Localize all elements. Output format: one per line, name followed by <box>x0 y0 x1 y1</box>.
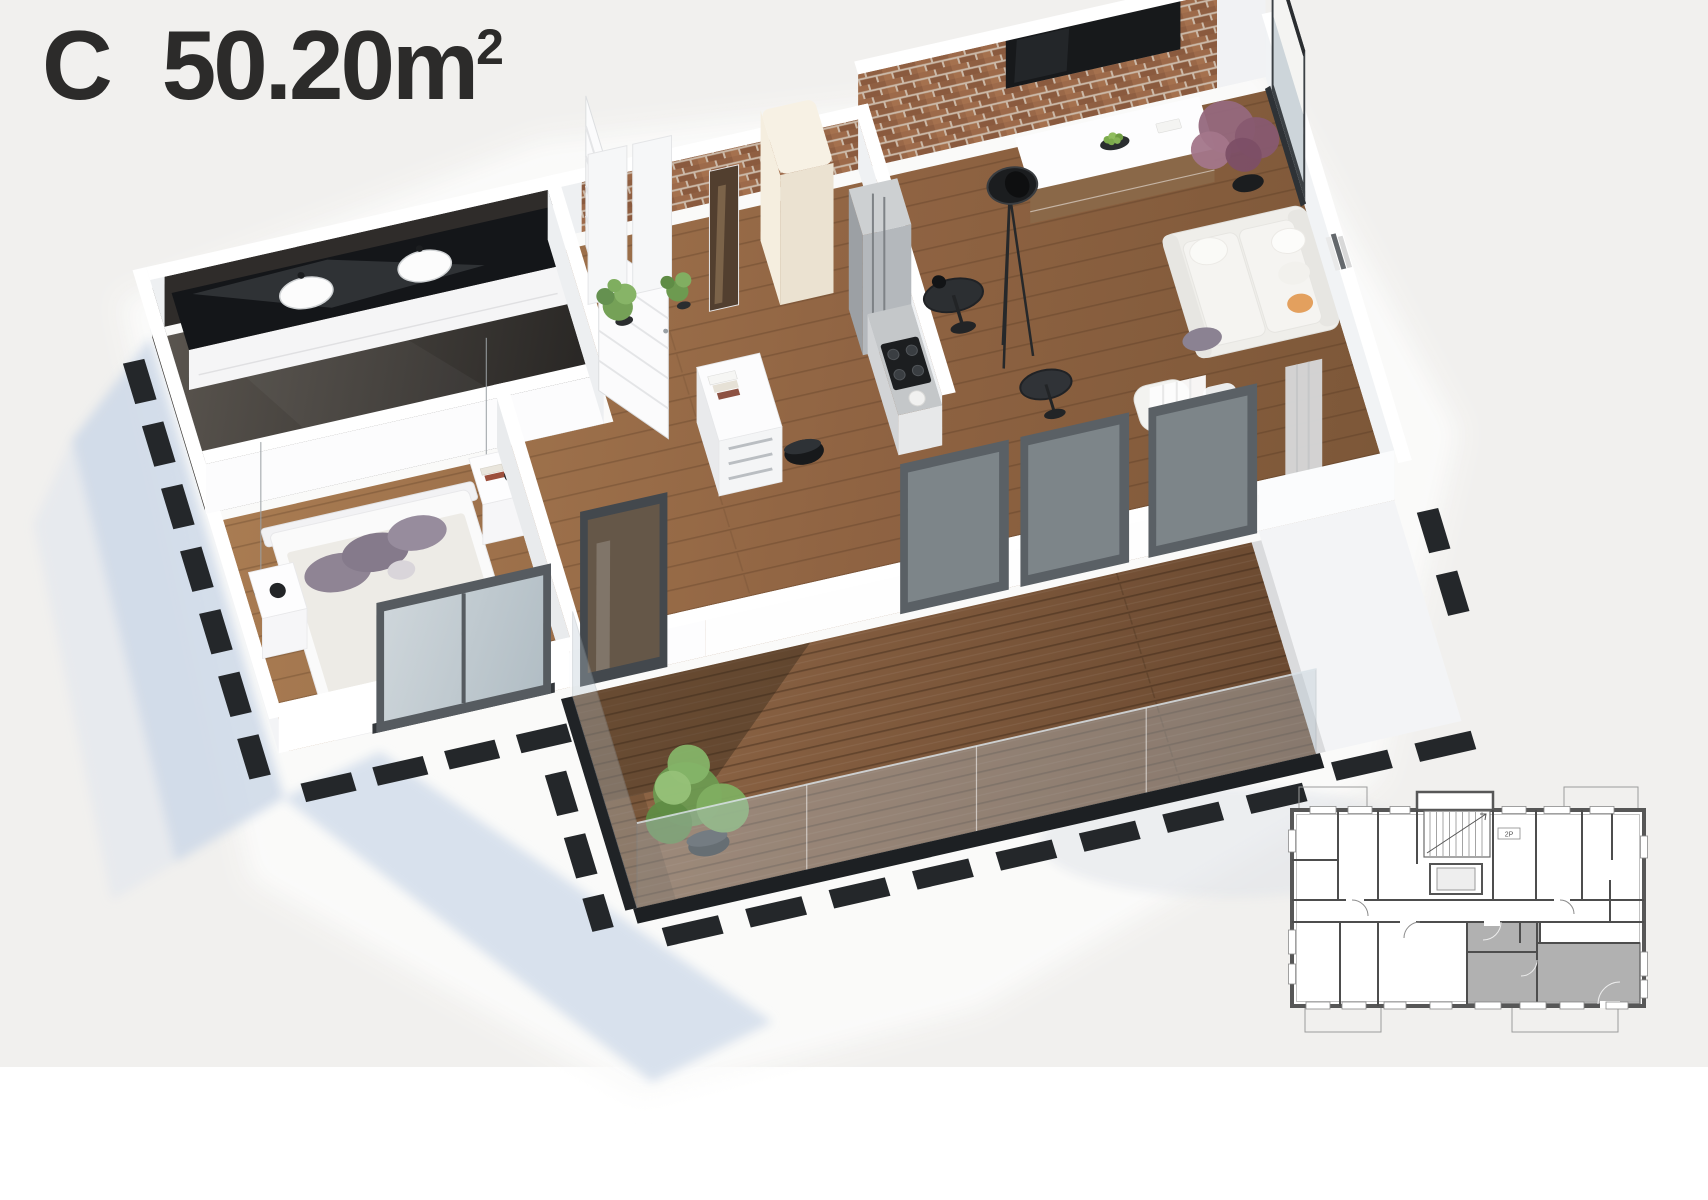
unit-title: C 50.20m2 <box>42 16 503 114</box>
mini-floor-plan: 2P <box>1289 787 1648 1032</box>
svg-text:2P: 2P <box>1505 832 1514 839</box>
mini-elevator <box>1430 864 1482 894</box>
unit-area: 50.20m2 <box>162 16 503 114</box>
unit-letter: C <box>42 16 110 114</box>
area-unit: m <box>392 16 476 114</box>
floorplan-3d-scene: 2P <box>0 0 1708 1200</box>
mini-staircase <box>1424 811 1490 857</box>
mini-stair-bump <box>1417 792 1493 810</box>
area-value: 50.20 <box>162 16 392 114</box>
mini-stair-label: 2P <box>1498 828 1520 839</box>
area-exponent: 2 <box>476 22 503 72</box>
